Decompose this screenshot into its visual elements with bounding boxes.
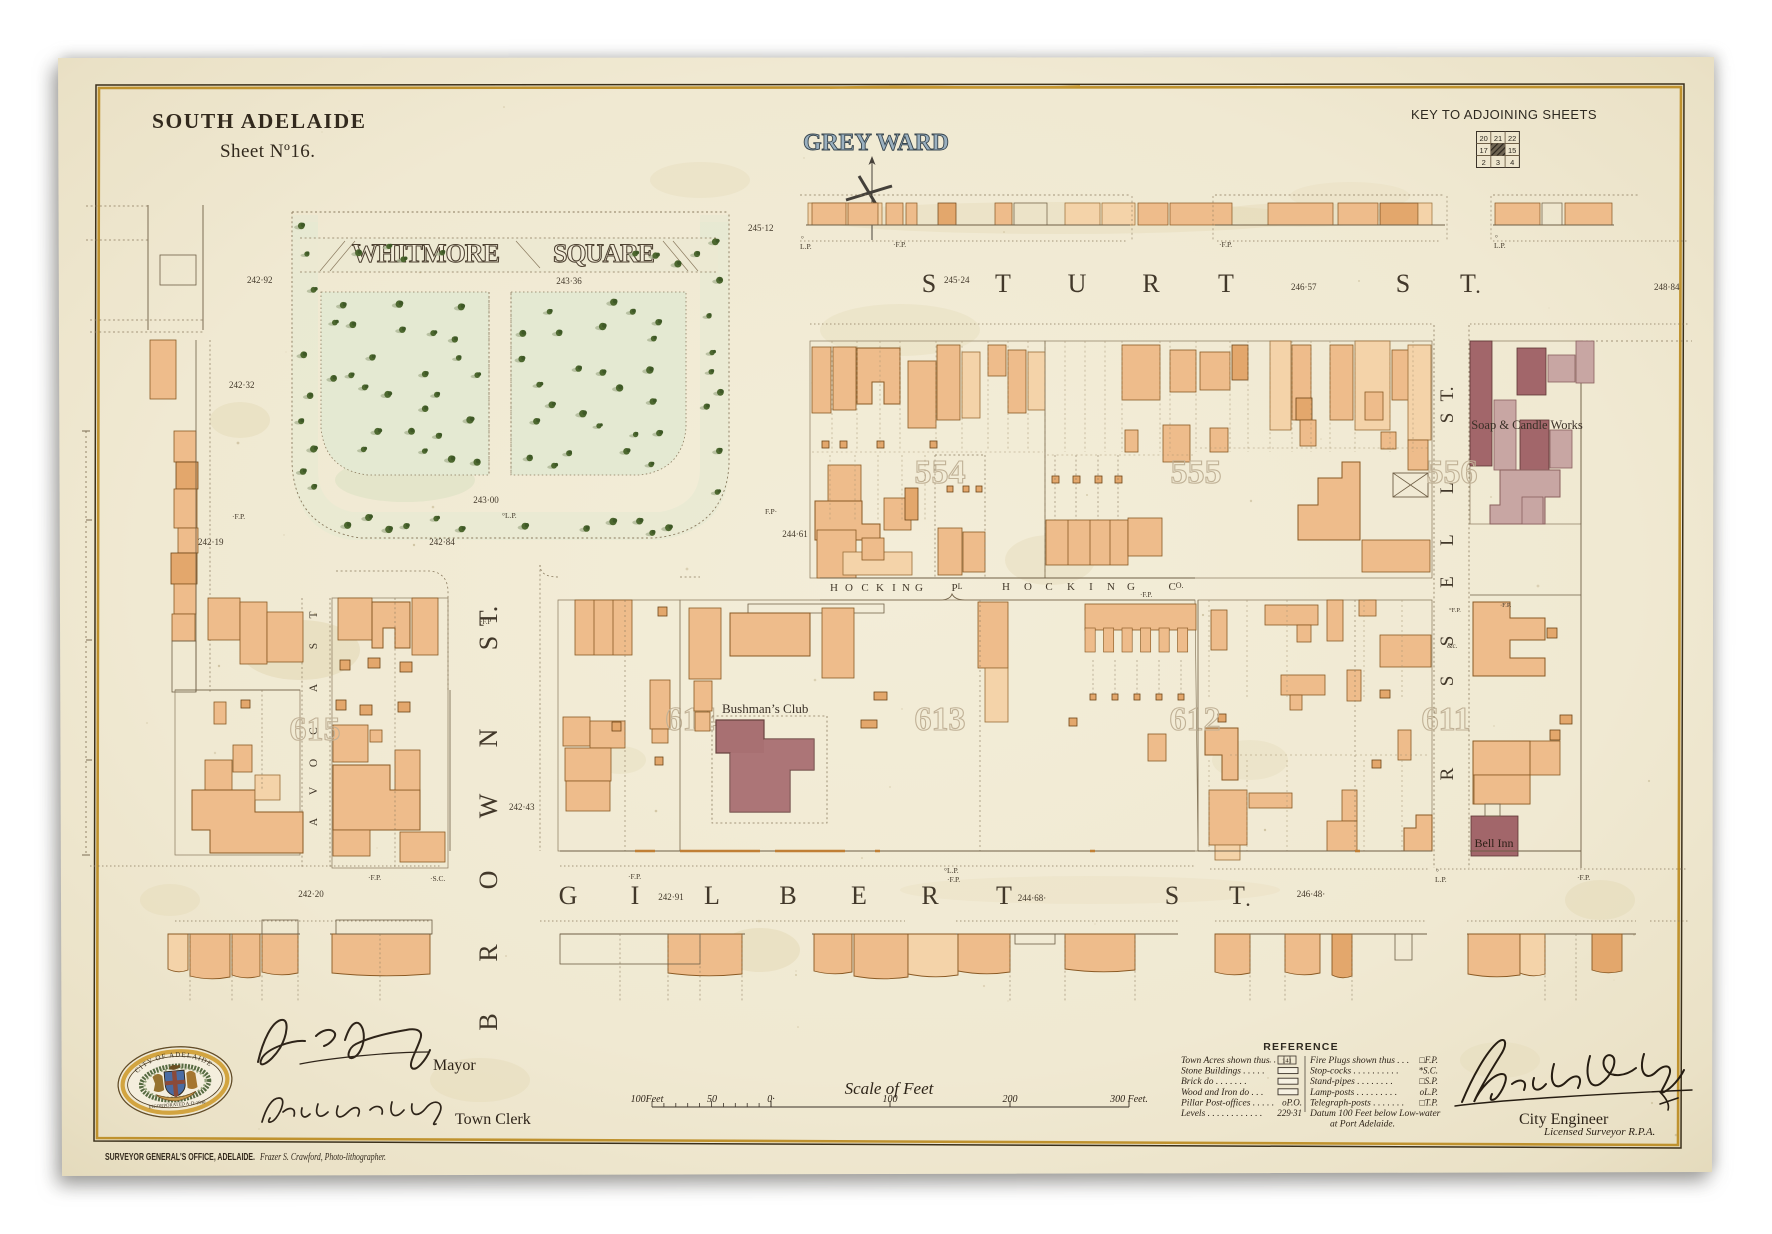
svg-text:at Port Adelaide.: at Port Adelaide.	[1330, 1120, 1395, 1130]
svg-text:V: V	[308, 786, 320, 795]
svg-text:T: T	[1229, 881, 1245, 910]
svg-text:Stop-cocks . . . . . . . . . .: Stop-cocks . . . . . . . . . .	[1310, 1067, 1399, 1077]
svg-text:·F.P.: ·F.P.	[232, 512, 245, 521]
svg-text:E: E	[851, 881, 867, 910]
svg-text:·F.P.: ·F.P.	[1577, 873, 1590, 882]
svg-text:Wood and Iron do . . .: Wood and Iron do . . .	[1181, 1088, 1263, 1098]
svg-text:T.: T.	[1437, 387, 1458, 402]
svg-text:GREY WARD: GREY WARD	[803, 130, 950, 156]
svg-text:R: R	[474, 944, 503, 962]
svg-text:T: T	[995, 269, 1011, 298]
svg-text:N: N	[474, 728, 503, 747]
svg-text:L.P.: L.P.	[1435, 875, 1447, 884]
svg-text:300 Feet.: 300 Feet.	[1109, 1094, 1148, 1105]
svg-text:F.P·: F.P·	[765, 507, 777, 516]
svg-text:S: S	[474, 636, 503, 650]
svg-text:·F.P.: ·F.P.	[893, 240, 906, 249]
svg-text:·F.P: ·F.P	[480, 618, 491, 626]
svg-text:O: O	[474, 871, 503, 890]
svg-text:N: N	[902, 582, 910, 594]
svg-text:555: 555	[1171, 454, 1222, 491]
svg-text:Town Clerk: Town Clerk	[455, 1111, 531, 1128]
svg-text:245·24: 245·24	[944, 275, 970, 285]
svg-text:554: 554	[915, 454, 966, 491]
svg-text:242·91: 242·91	[658, 892, 684, 902]
svg-text:oP.O.: oP.O.	[1282, 1097, 1302, 1107]
svg-text:°F.P.: °F.P.	[1449, 607, 1461, 614]
svg-text:Lamp-posts . . . . . . . . .: Lamp-posts . . . . . . . . .	[1309, 1088, 1397, 1098]
svg-text:556: 556	[1427, 454, 1478, 491]
svg-text:2: 2	[1482, 158, 1486, 167]
svg-text:242·20: 242·20	[298, 889, 324, 899]
svg-text:A: A	[308, 683, 320, 692]
svg-text:E: E	[1437, 576, 1458, 588]
svg-text:242·92: 242·92	[247, 275, 273, 285]
svg-text:SQUARE: SQUARE	[553, 239, 657, 268]
svg-text:243·36: 243·36	[556, 276, 582, 286]
svg-text:50: 50	[707, 1094, 717, 1105]
svg-text:Fire Plugs shown thus . . .: Fire Plugs shown thus . . .	[1309, 1056, 1409, 1066]
svg-text:229·31: 229·31	[1277, 1108, 1302, 1118]
svg-text:I: I	[631, 881, 640, 910]
svg-text:22: 22	[1508, 134, 1516, 143]
svg-text:100Feet: 100Feet	[631, 1094, 664, 1105]
svg-text:Licensed Surveyor R.P.A.: Licensed Surveyor R.P.A.	[1543, 1126, 1655, 1138]
svg-text:R: R	[1437, 767, 1458, 780]
svg-text:S: S	[1396, 269, 1410, 298]
svg-text:B: B	[779, 881, 796, 910]
svg-text:REFERENCE: REFERENCE	[1263, 1041, 1339, 1053]
svg-text:0·: 0·	[767, 1094, 775, 1105]
svg-text:SOUTH ADELAIDE: SOUTH ADELAIDE	[152, 109, 366, 133]
svg-text:T: T	[1460, 269, 1476, 298]
svg-text:N: N	[1107, 581, 1115, 593]
svg-text:Sheet Nº16.: Sheet Nº16.	[220, 141, 315, 162]
svg-text:243·00: 243·00	[473, 495, 499, 505]
svg-text:C: C	[861, 582, 868, 594]
svg-text:S: S	[1165, 881, 1179, 910]
svg-text:oL.P.: oL.P.	[1420, 1087, 1438, 1097]
svg-text:°L.P.: °L.P.	[944, 866, 959, 875]
svg-text:141: 141	[1282, 1058, 1292, 1065]
svg-text:□T.P.: □T.P.	[1419, 1097, 1438, 1107]
svg-text:·F.P.: ·F.P.	[368, 873, 381, 882]
svg-text:A: A	[308, 817, 320, 826]
svg-text:Brick do . . . . . . .: Brick do . . . . . . .	[1181, 1077, 1247, 1087]
svg-text:·S.C.: ·S.C.	[430, 874, 446, 883]
svg-text:O: O	[1024, 581, 1032, 593]
svg-text:G: G	[559, 881, 578, 910]
svg-text:K: K	[876, 582, 884, 594]
svg-text:T: T	[1218, 269, 1234, 298]
svg-text:·F.P.: ·F.P.	[1140, 591, 1153, 599]
svg-text:Bell Inn: Bell Inn	[1475, 836, 1514, 850]
svg-text:S: S	[308, 643, 320, 649]
svg-text:3: 3	[1496, 158, 1500, 167]
svg-text:I: I	[892, 582, 896, 594]
svg-text:Stone Buildings . . . . .: Stone Buildings . . . . .	[1181, 1067, 1265, 1077]
svg-text:O: O	[845, 582, 853, 594]
svg-text:21: 21	[1494, 134, 1502, 143]
svg-text:R: R	[921, 881, 939, 910]
svg-text:K: K	[1067, 581, 1075, 593]
svg-text:G: G	[1127, 581, 1135, 593]
svg-text:Town Acres shown thus: Town Acres shown thus	[1181, 1056, 1270, 1066]
svg-text:.: .	[1475, 273, 1481, 298]
svg-text:242·43: 242·43	[509, 802, 535, 812]
svg-text:246·57: 246·57	[1291, 282, 1317, 292]
svg-text:20: 20	[1480, 134, 1488, 143]
svg-text:611: 611	[1421, 701, 1470, 738]
svg-text:R: R	[1142, 269, 1160, 298]
svg-text:H: H	[830, 582, 838, 594]
svg-text:L.P.: L.P.	[1494, 241, 1506, 250]
svg-text:613: 613	[915, 701, 966, 738]
svg-text:B: B	[474, 1013, 503, 1030]
svg-text:G: G	[915, 582, 923, 594]
svg-text:·F.P.: ·F.P.	[628, 872, 641, 881]
svg-text:244·68·: 244·68·	[1018, 893, 1047, 903]
svg-text:242·19: 242·19	[198, 537, 224, 547]
svg-text:T: T	[308, 611, 320, 618]
svg-text:L: L	[1437, 534, 1458, 546]
svg-text:Bushman’s Club: Bushman’s Club	[722, 701, 808, 716]
svg-text:O: O	[308, 759, 320, 767]
svg-text:U: U	[1068, 269, 1087, 298]
svg-text:&c.: &c.	[1447, 642, 1458, 650]
svg-text:. .: . .	[1269, 1055, 1276, 1065]
svg-text:□F.P.: □F.P.	[1419, 1055, 1438, 1065]
svg-text:T: T	[996, 881, 1012, 910]
svg-text:Mayor: Mayor	[433, 1057, 476, 1074]
svg-text:Stand-pipes . . . . . . . .: Stand-pipes . . . . . . . .	[1310, 1077, 1393, 1087]
svg-text:S: S	[922, 269, 936, 298]
svg-text:Levels . . . . . . . . . . . .: Levels . . . . . . . . . . . .	[1180, 1109, 1262, 1119]
svg-text:248·84: 248·84	[1654, 282, 1680, 292]
svg-text:Pillar Post-offices . . . . .: Pillar Post-offices . . . . .	[1180, 1097, 1274, 1108]
svg-text:*S.C.: *S.C.	[1418, 1066, 1438, 1076]
svg-text:Datum 100 Feet below Low-water: Datum 100 Feet below Low-water	[1309, 1109, 1441, 1119]
svg-text:WHITMORE: WHITMORE	[352, 239, 502, 268]
svg-text:615: 615	[290, 711, 341, 748]
svg-text:244·61: 244·61	[782, 529, 808, 539]
svg-text:W: W	[474, 793, 503, 818]
svg-text:SURVEYOR GENERAL'S OFFICE, ADE: SURVEYOR GENERAL'S OFFICE, ADELAIDE.	[105, 1152, 255, 1163]
svg-text:200: 200	[1003, 1094, 1018, 1105]
svg-text:4: 4	[1510, 158, 1514, 167]
svg-text:°L.P.: °L.P.	[502, 511, 517, 520]
svg-text:246·48·: 246·48·	[1297, 889, 1326, 899]
svg-text:·F.P.: ·F.P.	[1500, 602, 1512, 609]
svg-text:242·32: 242·32	[229, 380, 255, 390]
svg-text:245·12: 245·12	[748, 223, 774, 233]
svg-text:KEY TO ADJOINING SHEETS: KEY TO ADJOINING SHEETS	[1411, 107, 1598, 122]
svg-text:L.P.: L.P.	[800, 242, 812, 251]
svg-text:612: 612	[1170, 701, 1221, 738]
svg-text:15: 15	[1508, 146, 1516, 155]
svg-text:Telegraph-posts . . . . . . .: Telegraph-posts . . . . . . .	[1310, 1098, 1404, 1108]
svg-text:C: C	[1045, 581, 1052, 593]
svg-text:I: I	[1089, 581, 1093, 593]
svg-text:□S.P.: □S.P.	[1419, 1076, 1438, 1086]
svg-text:H: H	[1002, 581, 1010, 593]
svg-text:Soap & Candle Works: Soap & Candle Works	[1471, 418, 1583, 432]
svg-text:·F.P.: ·F.P.	[947, 875, 960, 884]
svg-text:17: 17	[1480, 146, 1488, 155]
svg-text:242·84: 242·84	[429, 537, 455, 547]
svg-text:·F.P.: ·F.P.	[1219, 240, 1232, 249]
svg-text:Frazer S. Crawford, Photo-lith: Frazer S. Crawford, Photo-lithographer.	[259, 1152, 386, 1163]
svg-text:S: S	[1437, 413, 1458, 424]
svg-text:.: .	[1245, 886, 1251, 911]
svg-text:100: 100	[883, 1094, 898, 1105]
svg-text:L: L	[704, 881, 720, 910]
svg-text:S: S	[1437, 676, 1458, 687]
